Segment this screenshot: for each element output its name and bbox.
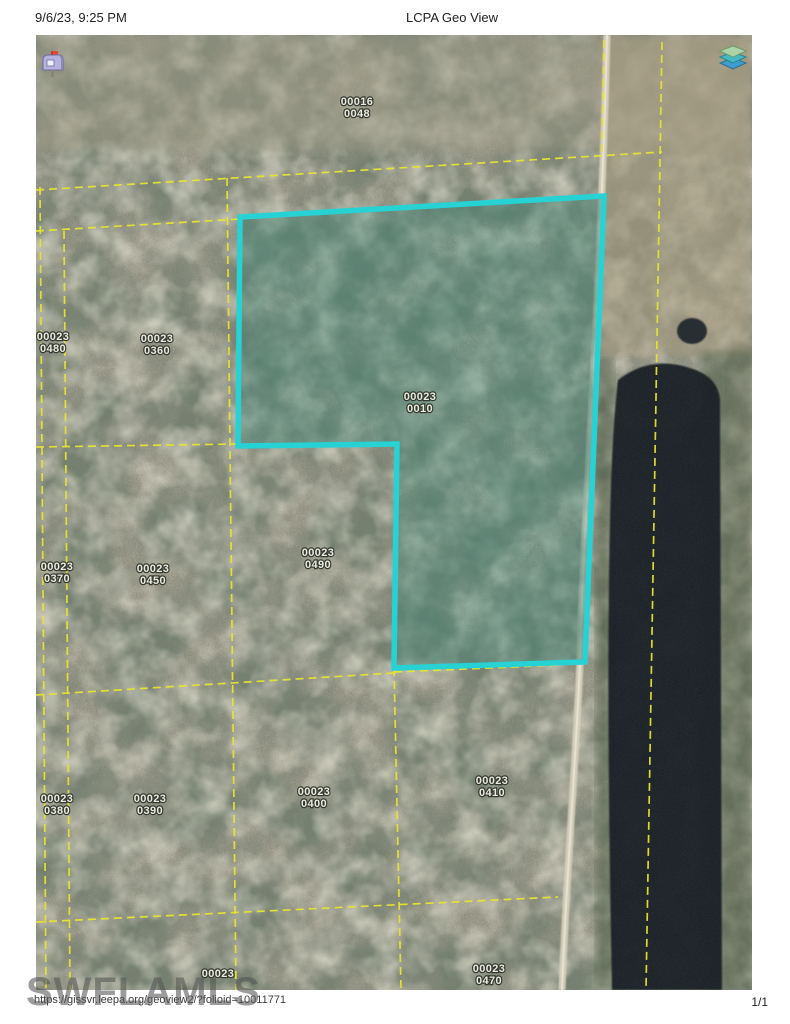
parcel-label: 000230410 (476, 775, 509, 799)
parcel-label: 000230400 (298, 786, 331, 810)
page-indicator: 1/1 (751, 995, 768, 1009)
parcel-label: 000230390 (134, 793, 167, 817)
parcel-label: 000230010 (404, 391, 437, 415)
parcel-label: 000230450 (137, 563, 170, 587)
parcel-label: 000230360 (141, 333, 174, 357)
water-texture (605, 360, 725, 990)
parcel-label: 000230380 (41, 793, 74, 817)
mailbox-icon (40, 50, 66, 78)
page-title: LCPA Geo View (406, 10, 498, 25)
print-page: 9/6/23, 9:25 PM LCPA Geo View (0, 0, 790, 1024)
parcel-label: 000160048 (341, 96, 374, 120)
parcel-label: 000230470 (473, 963, 506, 987)
parcel-label: 000230480 (37, 331, 70, 355)
header-datetime: 9/6/23, 9:25 PM (35, 10, 127, 25)
parcel-label: 000230370 (41, 561, 74, 585)
watermark: SWFLAMLS (26, 970, 261, 1015)
pond (677, 318, 707, 344)
aerial-map-canvas: 0001600480002304800002303600002300100002… (36, 35, 752, 990)
region-northeast-bare (600, 35, 752, 355)
parcel-label: 000230490 (302, 547, 335, 571)
layers-icon (716, 44, 750, 76)
aerial-map: 0001600480002304800002303600002300100002… (36, 35, 752, 990)
